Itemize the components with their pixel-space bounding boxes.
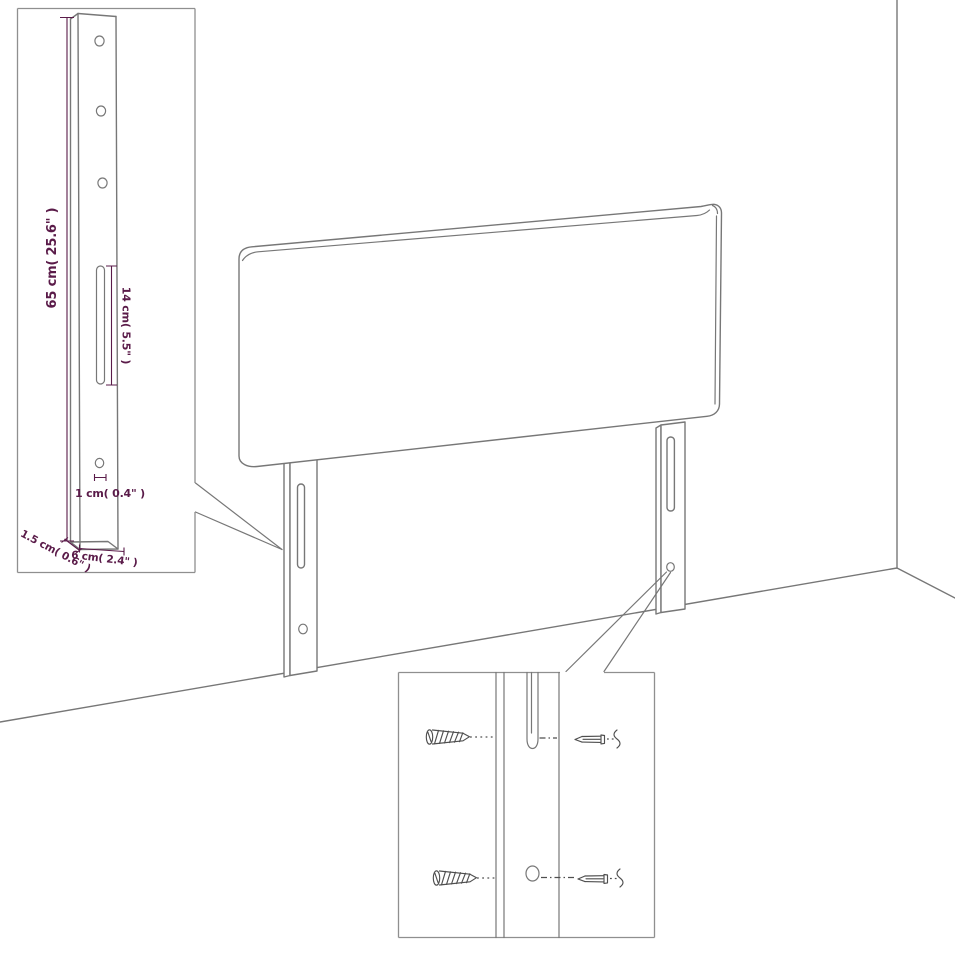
post-small-hole [95, 458, 103, 467]
dim-slot-label: 14 cm( 5.5" ) [120, 287, 133, 365]
headboard-right-leg [656, 422, 685, 614]
machine-screw-icon [578, 875, 608, 884]
panel-outline [239, 204, 722, 466]
post-hole-3 [98, 178, 107, 188]
leader-line-upper [196, 483, 283, 550]
dim-slot-line [106, 266, 117, 385]
headboard-illustration [239, 204, 722, 677]
right-leg-slot [667, 437, 674, 511]
post-slot [97, 266, 105, 384]
dim-height-label: 65 cm( 25.6" ) [45, 208, 60, 309]
leader-line-lower [196, 512, 283, 550]
product-diagram-headboard: 65 cm( 25.6" ) 14 cm( 5.5" ) 1 cm( 0.4" … [0, 0, 955, 955]
machine-screw-icon [575, 735, 605, 744]
hardware-row-2 [433, 869, 623, 887]
post-left-inner-edge [78, 14, 80, 550]
floor-line-right [897, 568, 955, 598]
post-right-edge [116, 17, 118, 550]
inset-leg-detail: 65 cm( 25.6" ) 14 cm( 5.5" ) 1 cm( 0.4" … [18, 9, 196, 575]
strip-hole [526, 866, 539, 881]
right-leg-side-face [656, 425, 661, 614]
strip-slot [527, 673, 538, 749]
thread-squiggle-row2 [617, 869, 623, 887]
dim-hole-label: 1 cm( 0.4" ) [75, 487, 145, 500]
inset-mount-detail [399, 673, 655, 938]
headboard-left-leg [284, 451, 317, 677]
leader-line-right [604, 573, 671, 672]
dimension-annotations: 65 cm( 25.6" ) 14 cm( 5.5" ) 1 cm( 0.4" … [18, 18, 145, 575]
left-leg-side-face [284, 454, 290, 677]
post-hole-1 [95, 36, 104, 46]
floor-line-left [0, 568, 897, 722]
leg-post-drawing [71, 14, 119, 550]
callout-lines-leg-detail [196, 483, 283, 550]
post-hole-2 [96, 106, 105, 116]
hardware-row-1 [426, 730, 620, 748]
thread-squiggle-row1 [614, 730, 620, 748]
dim-height-line [60, 18, 74, 542]
left-leg-slot [298, 484, 305, 568]
headboard-panel [239, 204, 722, 466]
wood-screw-icon [426, 730, 469, 744]
leg-strip-closeup [496, 673, 559, 938]
diagram-canvas: 65 cm( 25.6" ) 14 cm( 5.5" ) 1 cm( 0.4" … [0, 0, 955, 955]
dim-hole-bracket [95, 474, 107, 481]
wood-screw-icon [433, 871, 476, 885]
